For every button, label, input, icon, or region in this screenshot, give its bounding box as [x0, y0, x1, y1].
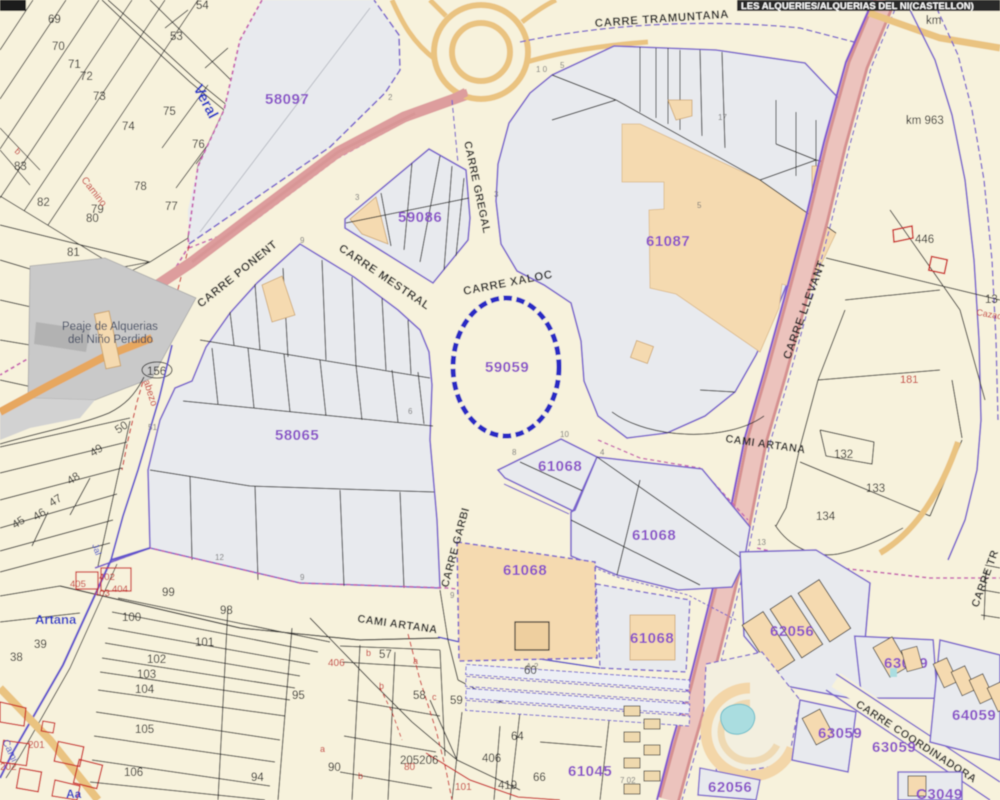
svg-text:62056: 62056 — [708, 779, 752, 796]
svg-text:104: 104 — [135, 684, 155, 696]
svg-text:71: 71 — [68, 59, 81, 71]
svg-text:105: 105 — [135, 724, 154, 736]
svg-text:7 02: 7 02 — [620, 776, 636, 785]
svg-text:73: 73 — [93, 91, 106, 103]
svg-text:406: 406 — [482, 753, 501, 765]
svg-text:Peaje de Alquerias: Peaje de Alquerias — [62, 321, 158, 333]
svg-text:61068: 61068 — [630, 630, 674, 647]
svg-text:101: 101 — [455, 782, 472, 793]
svg-text:181: 181 — [900, 374, 918, 386]
svg-text:66: 66 — [533, 772, 546, 784]
svg-text:406: 406 — [328, 658, 345, 669]
svg-text:419: 419 — [498, 780, 517, 792]
svg-text:95: 95 — [292, 690, 305, 702]
svg-text:17: 17 — [718, 113, 727, 122]
svg-text:64059: 64059 — [952, 707, 996, 724]
svg-text:53: 53 — [170, 31, 183, 43]
svg-text:13: 13 — [985, 294, 998, 306]
svg-text:75: 75 — [163, 106, 176, 118]
svg-text:3: 3 — [355, 193, 360, 202]
svg-text:9: 9 — [450, 591, 455, 600]
svg-text:61068: 61068 — [503, 562, 547, 579]
svg-text:101: 101 — [195, 637, 214, 649]
svg-text:99: 99 — [162, 587, 175, 599]
svg-text:C3049: C3049 — [916, 786, 963, 800]
svg-text:59059: 59059 — [485, 359, 529, 376]
svg-text:61087: 61087 — [646, 233, 690, 250]
svg-text:6: 6 — [408, 407, 413, 416]
svg-text:77: 77 — [165, 201, 178, 213]
svg-text:83: 83 — [14, 161, 27, 173]
svg-text:a: a — [320, 744, 325, 754]
svg-text:106: 106 — [124, 767, 143, 779]
svg-text:58: 58 — [413, 690, 426, 702]
svg-text:82: 82 — [37, 197, 50, 209]
svg-text:64: 64 — [511, 731, 524, 743]
svg-text:10: 10 — [560, 430, 569, 439]
svg-text:90: 90 — [328, 762, 341, 774]
svg-text:205206: 205206 — [400, 755, 438, 767]
svg-text:38: 38 — [10, 652, 23, 664]
svg-text:202: 202 — [0, 762, 17, 773]
svg-text:70: 70 — [52, 41, 65, 53]
svg-text:59: 59 — [450, 695, 463, 707]
svg-text:b: b — [358, 771, 363, 781]
svg-text:9: 9 — [300, 236, 305, 245]
svg-text:61045: 61045 — [568, 763, 612, 780]
svg-text:2: 2 — [388, 93, 393, 102]
svg-text:74: 74 — [122, 121, 135, 133]
svg-text:1 0: 1 0 — [536, 65, 548, 74]
svg-text:446: 446 — [915, 234, 934, 246]
svg-text:133: 133 — [866, 483, 885, 495]
svg-text:5: 5 — [560, 61, 565, 70]
svg-text:57: 57 — [379, 649, 392, 661]
svg-text:63059: 63059 — [872, 739, 916, 756]
svg-text:51: 51 — [148, 423, 157, 432]
svg-text:LES ALQUERIES/ALQUERIAS DEL NI: LES ALQUERIES/ALQUERIAS DEL NI(CASTELLON… — [741, 1, 974, 12]
svg-text:12: 12 — [215, 553, 224, 562]
svg-text:54: 54 — [196, 0, 209, 12]
svg-text:80: 80 — [86, 213, 99, 225]
svg-text:94: 94 — [251, 772, 264, 784]
svg-text:a: a — [413, 656, 418, 666]
svg-text:61068: 61068 — [632, 527, 676, 544]
svg-text:59086: 59086 — [398, 209, 442, 226]
svg-text:61068: 61068 — [538, 458, 582, 475]
svg-text:63059: 63059 — [818, 725, 862, 742]
svg-text:100: 100 — [122, 612, 141, 624]
svg-text:4: 4 — [600, 448, 605, 457]
svg-text:A-2: A-2 — [526, 662, 539, 671]
svg-text:km: km — [926, 15, 941, 27]
svg-text:404: 404 — [112, 584, 128, 595]
svg-text:405: 405 — [70, 579, 86, 590]
svg-text:98: 98 — [220, 605, 233, 617]
svg-text:72: 72 — [80, 71, 93, 83]
svg-text:5: 5 — [697, 201, 702, 210]
svg-text:9: 9 — [300, 573, 305, 582]
svg-text:8: 8 — [512, 448, 517, 457]
svg-text:del Niño Perdido: del Niño Perdido — [68, 334, 153, 346]
svg-text:69: 69 — [48, 14, 61, 26]
svg-text:58065: 58065 — [275, 427, 319, 444]
svg-text:b: b — [366, 648, 371, 658]
svg-text:102: 102 — [147, 654, 166, 666]
svg-text:b: b — [379, 681, 384, 691]
svg-text:Artana: Artana — [35, 612, 77, 627]
svg-text:132: 132 — [834, 449, 853, 461]
svg-text:Aa: Aa — [66, 787, 82, 800]
svg-text:76: 76 — [192, 139, 205, 151]
svg-text:78: 78 — [134, 181, 147, 193]
svg-text:201: 201 — [28, 740, 45, 751]
svg-text:403: 403 — [94, 588, 110, 599]
svg-text:13: 13 — [757, 538, 766, 547]
svg-text:62056: 62056 — [770, 623, 814, 640]
svg-text:156: 156 — [147, 366, 166, 378]
svg-text:81: 81 — [67, 247, 80, 259]
svg-text:58097: 58097 — [265, 91, 309, 108]
svg-text:km 963: km 963 — [906, 115, 944, 127]
svg-text:39: 39 — [34, 639, 47, 651]
svg-text:134: 134 — [816, 511, 836, 523]
svg-text:402: 402 — [99, 572, 115, 583]
svg-text:c: c — [432, 692, 437, 702]
svg-text:3: 3 — [494, 190, 499, 199]
